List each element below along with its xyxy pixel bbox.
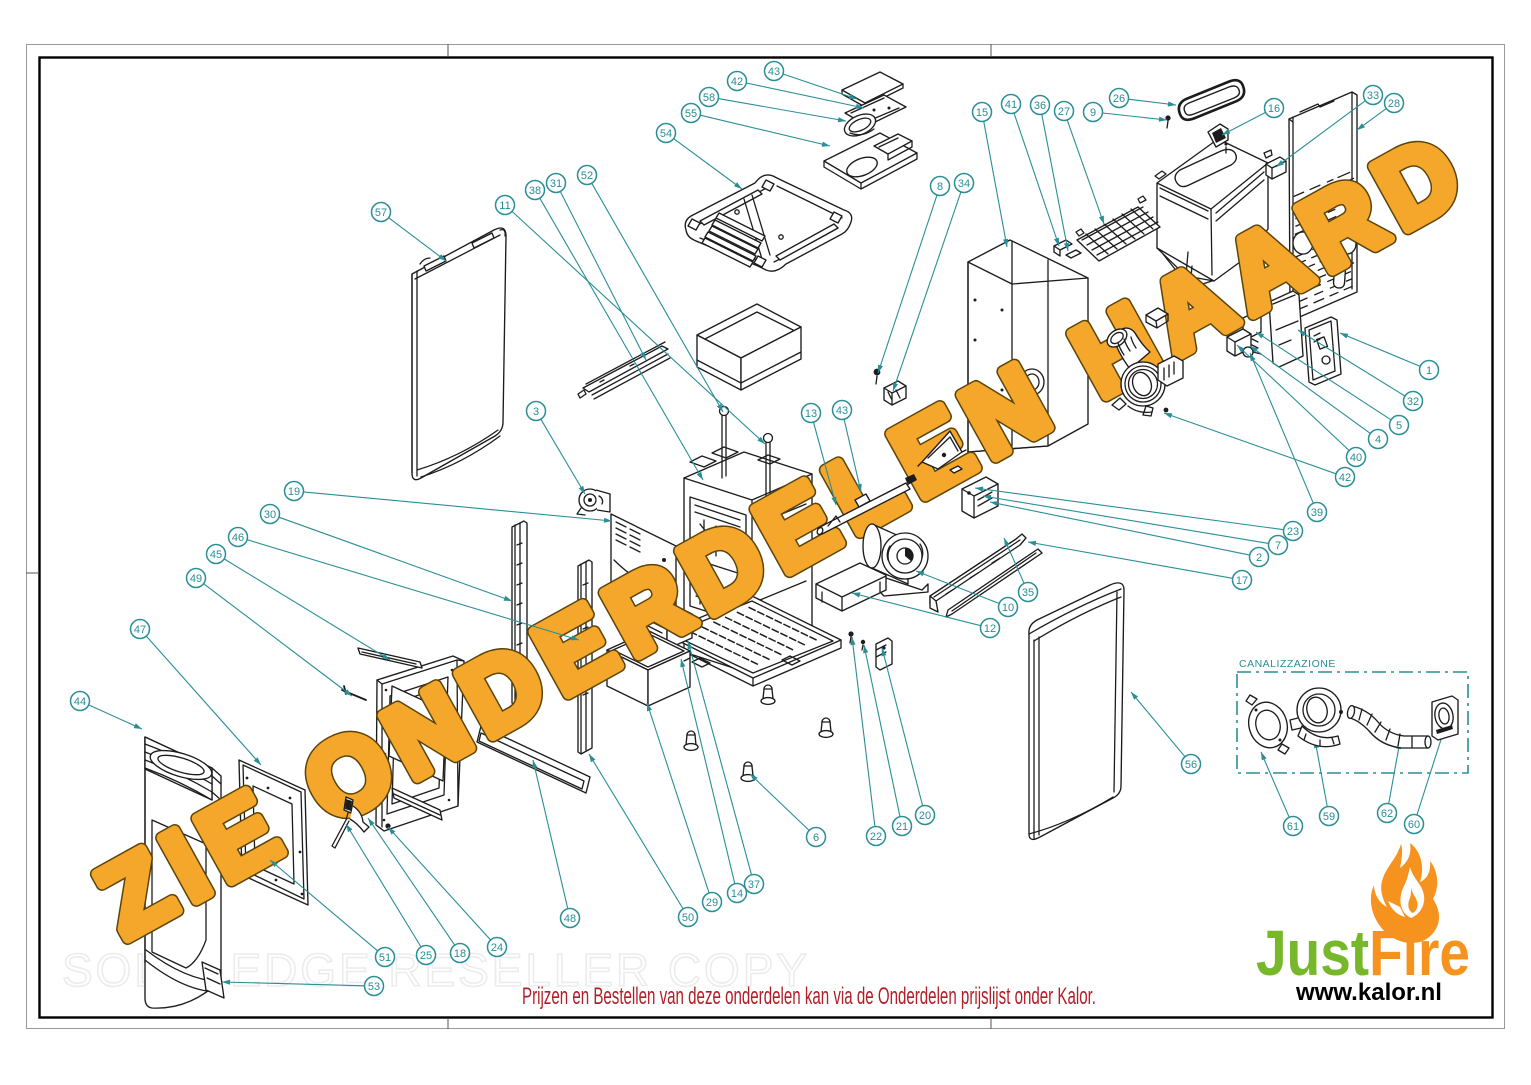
svg-text:51: 51 <box>379 952 391 964</box>
svg-text:39: 39 <box>1311 507 1323 519</box>
svg-text:4: 4 <box>1375 434 1381 446</box>
svg-text:8: 8 <box>937 181 943 193</box>
svg-text:1: 1 <box>1426 365 1432 377</box>
svg-text:26: 26 <box>1113 93 1125 105</box>
svg-text:55: 55 <box>685 108 697 120</box>
svg-text:22: 22 <box>870 831 882 843</box>
svg-text:60: 60 <box>1408 819 1420 831</box>
svg-text:57: 57 <box>375 207 387 219</box>
svg-text:19: 19 <box>288 486 300 498</box>
svg-text:49: 49 <box>190 573 202 585</box>
svg-text:18: 18 <box>454 948 466 960</box>
svg-text:52: 52 <box>581 170 593 182</box>
svg-text:38: 38 <box>529 185 541 197</box>
svg-text:10: 10 <box>1002 602 1014 614</box>
svg-text:33: 33 <box>1367 90 1379 102</box>
svg-text:47: 47 <box>134 624 146 636</box>
svg-text:31: 31 <box>550 178 562 190</box>
svg-text:40: 40 <box>1350 452 1362 464</box>
svg-text:53: 53 <box>368 981 380 993</box>
svg-text:36: 36 <box>1034 100 1046 112</box>
svg-text:20: 20 <box>919 810 931 822</box>
svg-text:30: 30 <box>264 509 276 521</box>
svg-text:58: 58 <box>703 92 715 104</box>
svg-text:2: 2 <box>1256 552 1262 564</box>
svg-text:Prijzen en Bestellen van deze: Prijzen en Bestellen van deze onderdelen… <box>522 983 1096 1010</box>
svg-text:11: 11 <box>499 200 510 212</box>
svg-text:24: 24 <box>491 942 503 954</box>
svg-text:59: 59 <box>1323 811 1335 823</box>
svg-text:27: 27 <box>1058 106 1070 118</box>
svg-text:12: 12 <box>984 623 996 635</box>
svg-text:25: 25 <box>420 950 432 962</box>
svg-text:45: 45 <box>210 549 222 561</box>
svg-text:42: 42 <box>1339 472 1351 484</box>
svg-text:42: 42 <box>731 76 743 88</box>
svg-text:23: 23 <box>1287 526 1299 538</box>
svg-text:14: 14 <box>731 888 743 900</box>
svg-text:37: 37 <box>748 879 760 891</box>
svg-text:48: 48 <box>564 913 576 925</box>
svg-text:28: 28 <box>1388 98 1400 110</box>
svg-text:46: 46 <box>232 532 244 544</box>
svg-text:43: 43 <box>836 405 848 417</box>
svg-text:CANALIZZAZIONE: CANALIZZAZIONE <box>1239 658 1336 670</box>
svg-text:3: 3 <box>533 406 539 418</box>
svg-text:17: 17 <box>1236 575 1248 587</box>
svg-text:16: 16 <box>1268 103 1280 115</box>
svg-text:50: 50 <box>682 912 694 924</box>
svg-text:62: 62 <box>1381 808 1393 820</box>
svg-text:44: 44 <box>74 696 86 708</box>
svg-text:54: 54 <box>660 128 672 140</box>
svg-text:41: 41 <box>1005 99 1017 111</box>
svg-text:43: 43 <box>768 66 780 78</box>
svg-text:7: 7 <box>1275 540 1281 552</box>
svg-text:15: 15 <box>976 107 988 119</box>
svg-text:6: 6 <box>813 832 819 844</box>
svg-text:35: 35 <box>1022 587 1034 599</box>
svg-text:34: 34 <box>958 178 970 190</box>
svg-text:61: 61 <box>1287 821 1299 833</box>
svg-text:5: 5 <box>1396 420 1402 432</box>
svg-text:29: 29 <box>706 897 718 909</box>
svg-text:32: 32 <box>1407 396 1419 408</box>
svg-text:13: 13 <box>805 408 817 420</box>
svg-text:21: 21 <box>896 821 908 833</box>
svg-text:www.kalor.nl: www.kalor.nl <box>1295 979 1442 1006</box>
svg-text:9: 9 <box>1090 107 1096 119</box>
svg-text:56: 56 <box>1185 759 1197 771</box>
